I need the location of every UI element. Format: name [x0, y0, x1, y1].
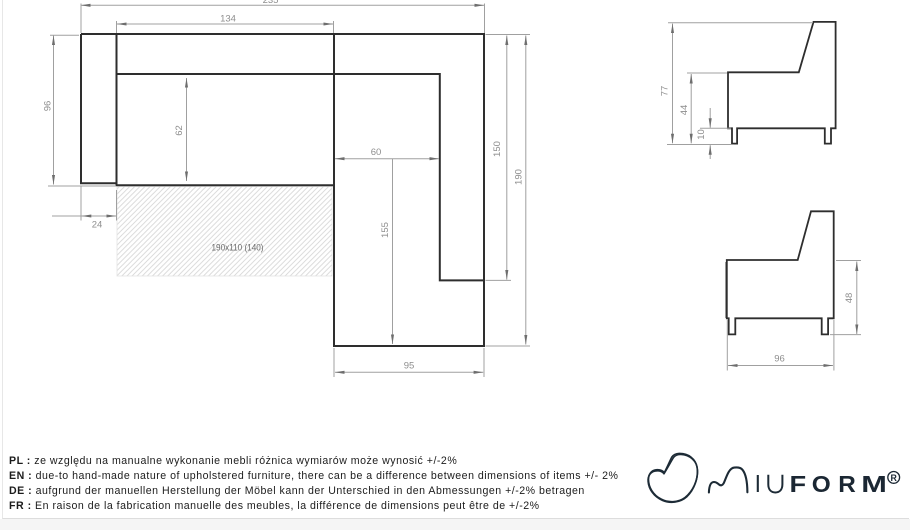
svg-text:190x110 (140): 190x110 (140): [212, 243, 264, 254]
svg-text:134: 134: [220, 14, 236, 25]
svg-text:150: 150: [492, 141, 503, 157]
svg-text:M: M: [861, 470, 887, 497]
svg-text:96: 96: [43, 101, 54, 112]
svg-text:96: 96: [774, 354, 785, 365]
svg-text:190: 190: [514, 169, 525, 185]
svg-text:235: 235: [263, 0, 279, 6]
svg-text:44: 44: [679, 105, 690, 116]
svg-text:R: R: [838, 471, 856, 498]
svg-text:95: 95: [404, 361, 415, 372]
svg-text:48: 48: [844, 293, 855, 304]
svg-text:F: F: [790, 471, 807, 497]
svg-text:24: 24: [92, 220, 103, 231]
svg-text:R: R: [891, 473, 898, 483]
svg-text:77: 77: [660, 86, 671, 97]
svg-text:155: 155: [380, 222, 391, 238]
svg-text:10: 10: [696, 129, 707, 140]
svg-text:62: 62: [174, 125, 185, 136]
svg-text:O: O: [812, 471, 831, 497]
svg-text:60: 60: [371, 147, 382, 158]
